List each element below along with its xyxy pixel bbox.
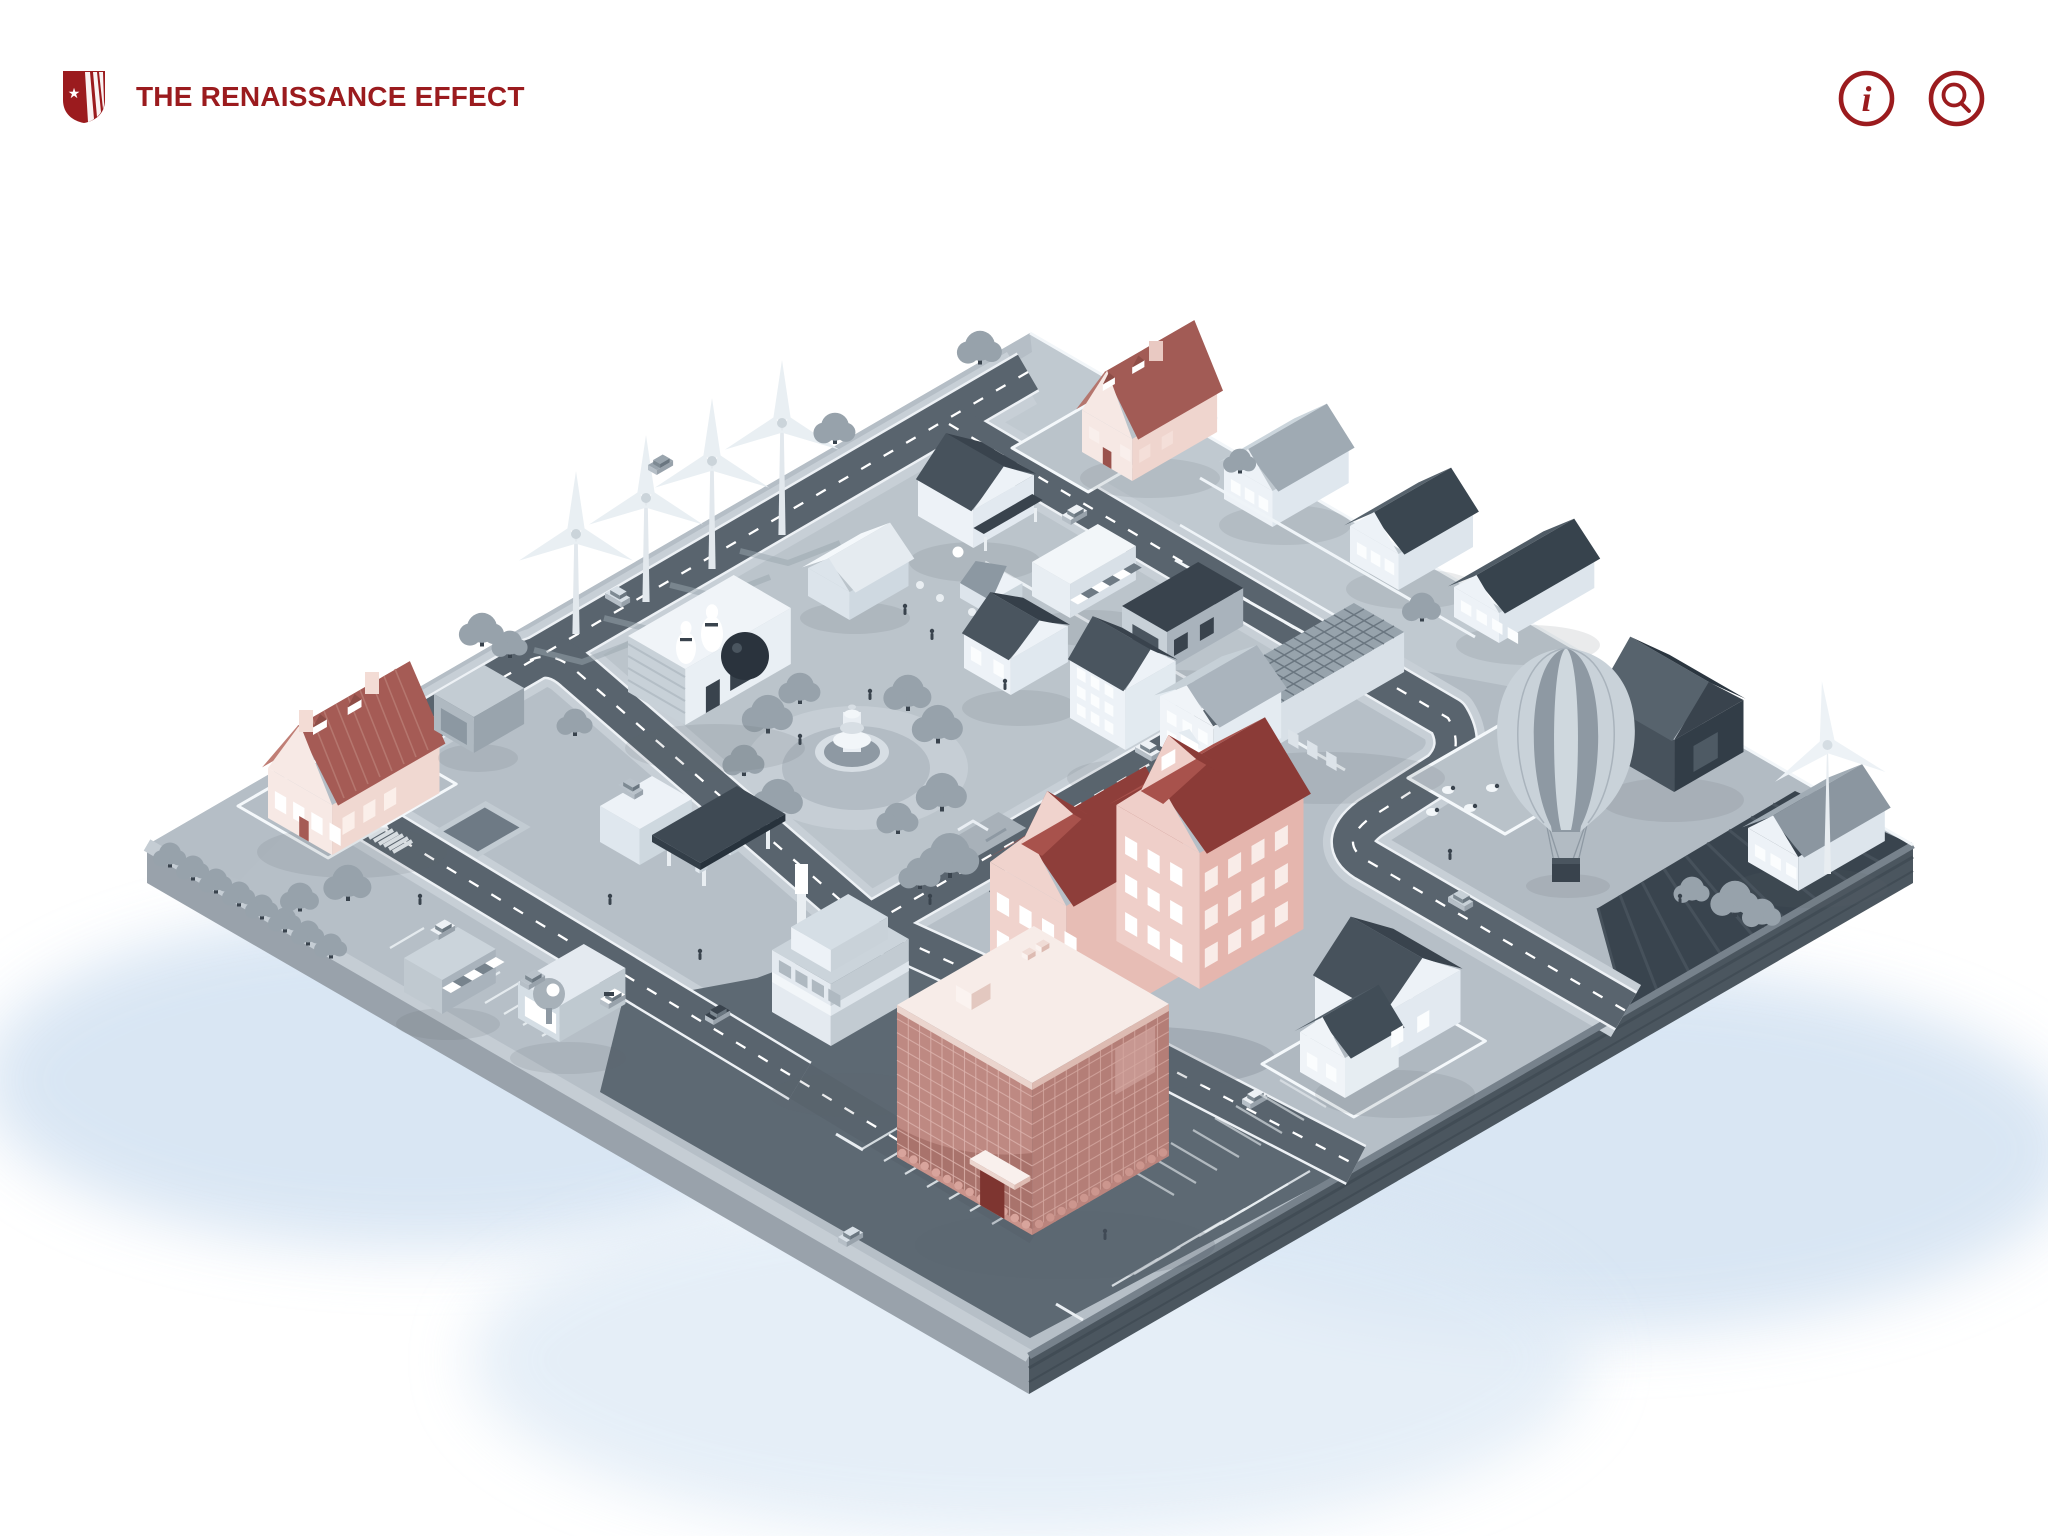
svg-text:★: ★ bbox=[68, 85, 81, 101]
svg-text:i: i bbox=[1861, 79, 1871, 119]
